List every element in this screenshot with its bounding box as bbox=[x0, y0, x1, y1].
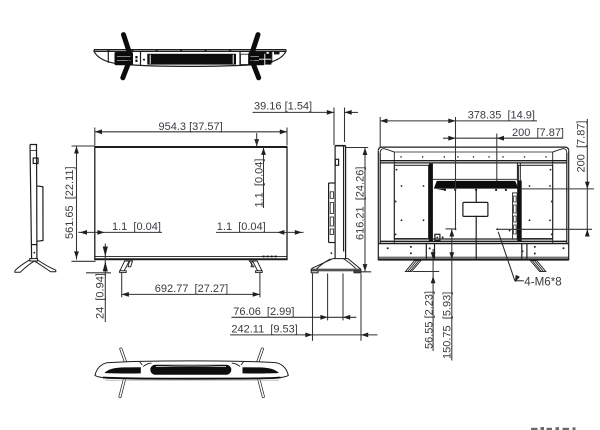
svg-text:1.1 [0.04]: 1.1 [0.04] bbox=[253, 159, 265, 208]
svg-text:56.55 [2.23]: 56.55 [2.23] bbox=[424, 291, 436, 349]
svg-text:150.75 [5.93]: 150.75 [5.93] bbox=[442, 292, 454, 359]
svg-text:954.3 [37.57]: 954.3 [37.57] bbox=[159, 121, 223, 133]
svg-text:616.21 [24.26]: 616.21 [24.26] bbox=[354, 167, 366, 240]
svg-text:1.1 [0.04]: 1.1 [0.04] bbox=[217, 221, 266, 233]
svg-text:242.11 [9.53]: 242.11 [9.53] bbox=[231, 324, 297, 336]
svg-text:24 [0.94]: 24 [0.94] bbox=[94, 273, 106, 319]
svg-text:692.77 [27.27]: 692.77 [27.27] bbox=[155, 283, 228, 295]
svg-text:200 [7.87]: 200 [7.87] bbox=[576, 121, 588, 173]
svg-text:200 [7.87]: 200 [7.87] bbox=[512, 127, 564, 139]
svg-text:76.06 [2.99]: 76.06 [2.99] bbox=[233, 306, 294, 318]
svg-text:1.1 [0.04]: 1.1 [0.04] bbox=[112, 221, 161, 233]
svg-text:561.65 [22.11]: 561.65 [22.11] bbox=[64, 166, 76, 239]
svg-text:39.16 [1.54]: 39.16 [1.54] bbox=[254, 101, 312, 113]
svg-text:4-M6*8: 4-M6*8 bbox=[524, 275, 561, 288]
svg-text:378.35 [14.9]: 378.35 [14.9] bbox=[468, 110, 535, 122]
